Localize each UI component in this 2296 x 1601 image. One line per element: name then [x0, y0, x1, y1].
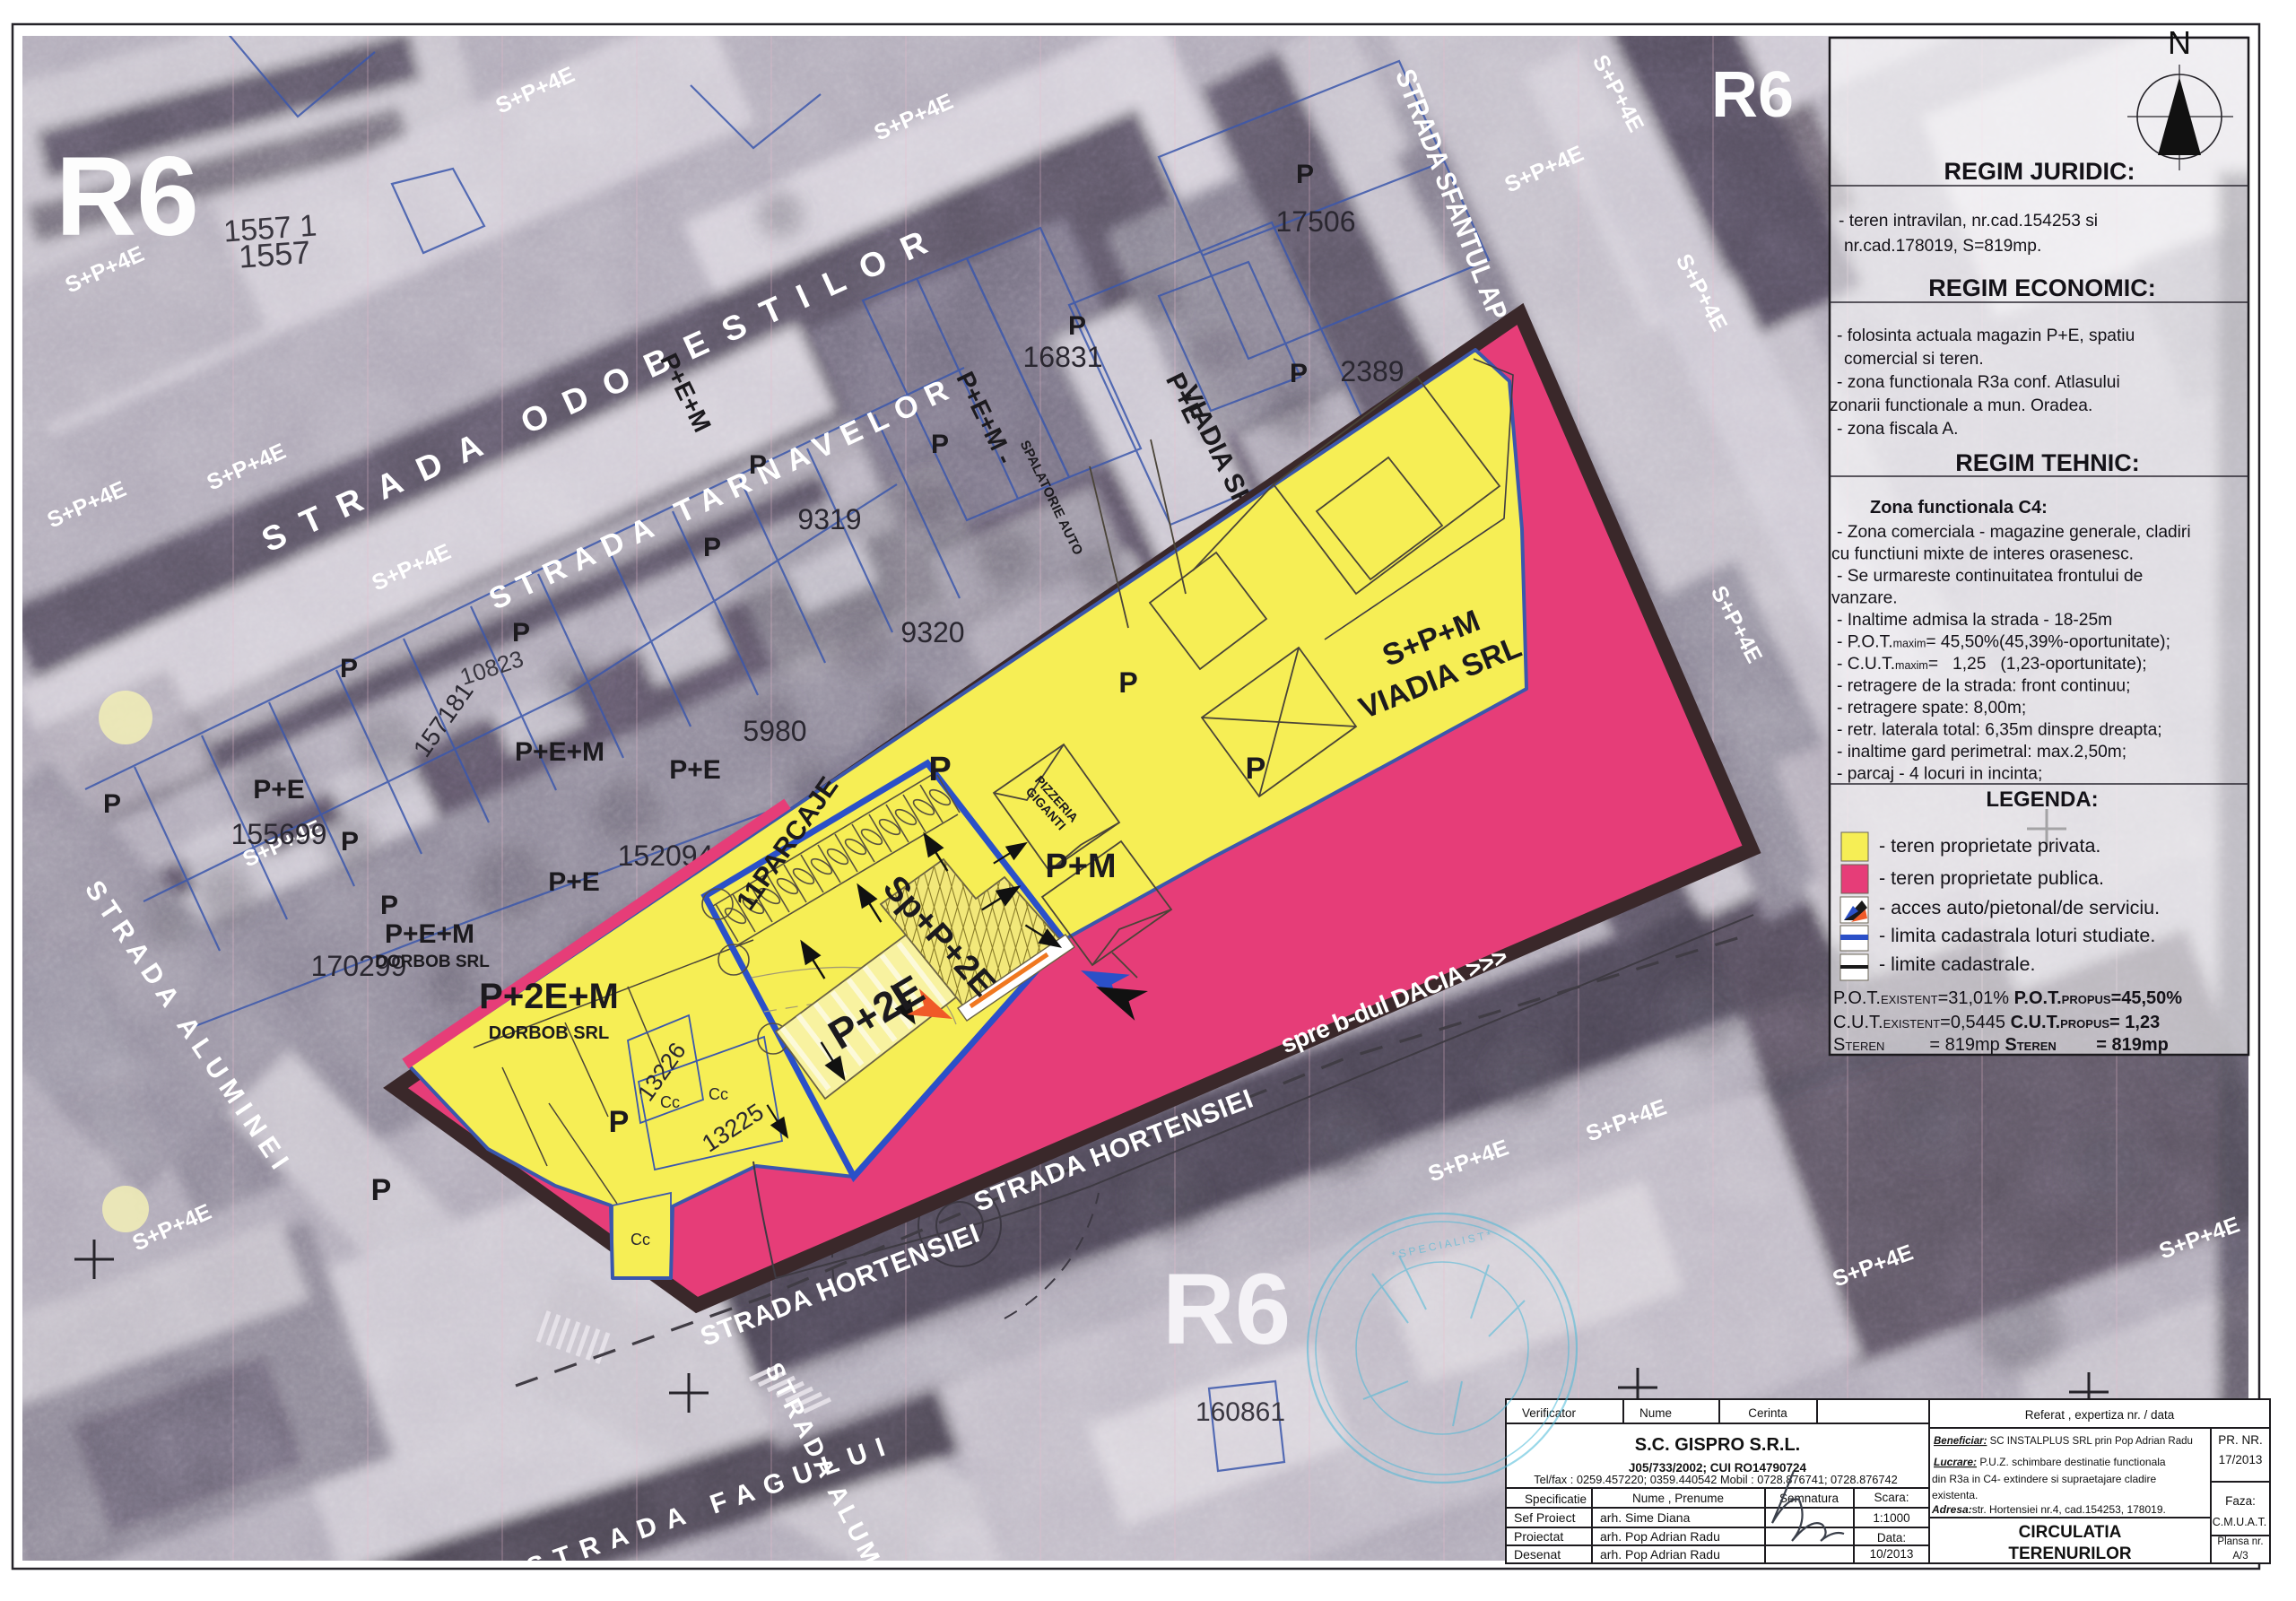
svg-text:Proiectat: Proiectat [1514, 1529, 1563, 1544]
svg-text:- Zona comerciala - magazine g: - Zona comerciala - magazine generale, c… [1837, 523, 2191, 542]
svg-text:P+E: P+E [669, 755, 721, 785]
svg-text:P+M: P+M [1045, 848, 1116, 885]
svg-text:C.U.T.EXISTENT=0,5445 C.U.T.P: C.U.T.EXISTENT=0,5445 C.U.T.PROPUS= 1,23 [1833, 1013, 2160, 1032]
svg-text:zonarii functionale a mun. Ora: zonarii functionale a mun. Oradea. [1830, 396, 2092, 415]
svg-text:Referat , expertiza nr. / data: Referat , expertiza nr. / data [2025, 1408, 2175, 1422]
svg-text:1557: 1557 [238, 233, 312, 274]
svg-text:- Se urmareste continuitatea f: - Se urmareste continuitatea frontului d… [1837, 567, 2143, 586]
svg-text:- teren intravilan, nr.cad.154: - teren intravilan, nr.cad.154253 si [1839, 212, 2098, 231]
svg-text:P: P [931, 430, 949, 459]
svg-text:Data:: Data: [1877, 1531, 1906, 1544]
svg-text:nr.cad.178019, S=819mp.: nr.cad.178019, S=819mp. [1844, 237, 2041, 256]
svg-text:REGIM ECONOMIC:: REGIM ECONOMIC: [1928, 274, 2156, 301]
svg-text:Sef Proiect: Sef Proiect [1514, 1510, 1576, 1525]
svg-text:Cc: Cc [660, 1093, 680, 1111]
svg-text:- retragere de la strada: fron: - retragere de la strada: front continuu… [1837, 677, 2130, 696]
svg-text:- C.U.T.maxim= 1,25 (1,23-: - C.U.T.maxim= 1,25 (1,23-oportunitate); [1837, 655, 2147, 674]
svg-text:Verificator: Verificator [1522, 1406, 1577, 1420]
svg-text:P: P [749, 450, 767, 480]
svg-text:- Inaltime admisa la strada -: - Inaltime admisa la strada - 18-25m [1837, 611, 2112, 630]
svg-text:- teren proprietate privata.: - teren proprietate privata. [1879, 835, 2100, 857]
svg-text:P: P [341, 827, 359, 857]
svg-text:- teren proprietate publica.: - teren proprietate publica. [1879, 867, 2104, 889]
svg-text:REGIM JURIDIC:: REGIM JURIDIC: [1944, 158, 2135, 185]
svg-text:P: P [380, 891, 398, 920]
svg-text:arh. Sime Diana: arh. Sime Diana [1600, 1510, 1691, 1525]
svg-text:Adresa:str. Hortensiei nr.4, c: Adresa:str. Hortensiei nr.4, cad.154253,… [1931, 1503, 2166, 1516]
svg-text:R6: R6 [56, 135, 199, 259]
svg-text:A/3: A/3 [2232, 1551, 2248, 1562]
svg-text:- limita cadastrala loturi stu: - limita cadastrala loturi studiate. [1879, 925, 2155, 946]
svg-text:17506: 17506 [1276, 205, 1356, 238]
svg-text:Tel/fax : 0259.457220; 0359.44: Tel/fax : 0259.457220; 0359.440542 Mobil… [1534, 1473, 1898, 1486]
svg-text:Scara:: Scara: [1874, 1491, 1909, 1504]
svg-text:- zona fiscala A.: - zona fiscala A. [1837, 420, 1958, 439]
svg-text:DORBOB SRL: DORBOB SRL [375, 953, 490, 971]
svg-text:10/2013: 10/2013 [1870, 1547, 1914, 1561]
svg-text:Desenat: Desenat [1514, 1547, 1561, 1562]
svg-text:- retragere spate: 8,00m;: - retragere spate: 8,00m; [1837, 699, 2026, 718]
svg-text:S.C. GISPRO S.R.L.: S.C. GISPRO S.R.L. [1635, 1435, 1800, 1455]
svg-text:Nume: Nume [1639, 1406, 1672, 1420]
svg-text:P: P [512, 618, 530, 648]
svg-text:17/2013: 17/2013 [2219, 1453, 2263, 1466]
svg-text:P: P [371, 1173, 392, 1207]
svg-text:2389: 2389 [1340, 355, 1404, 387]
svg-text:Specificatie: Specificatie [1525, 1492, 1587, 1506]
svg-text:16831: 16831 [1023, 341, 1103, 373]
svg-text:Plansa nr.: Plansa nr. [2217, 1536, 2263, 1547]
svg-text:Zona functionala C4:: Zona functionala C4: [1870, 498, 2048, 518]
svg-text:1:1000: 1:1000 [1873, 1511, 1909, 1525]
svg-text:P: P [1296, 160, 1314, 189]
svg-text:din R3a in C4- extindere si su: din R3a in C4- extindere si supraetajare… [1932, 1473, 2156, 1485]
svg-text:R6: R6 [1711, 59, 1794, 131]
svg-text:Cc: Cc [709, 1085, 728, 1103]
svg-text:- limite cadastrale.: - limite cadastrale. [1879, 953, 2035, 975]
svg-text:160861: 160861 [1196, 1397, 1285, 1427]
svg-text:P: P [1068, 311, 1086, 341]
svg-text:P+2E+M: P+2E+M [479, 977, 619, 1016]
svg-text:5980: 5980 [743, 715, 806, 747]
svg-text:P+E: P+E [253, 775, 305, 805]
svg-text:- acces auto/pietonal/de servi: - acces auto/pietonal/de serviciu. [1879, 897, 2160, 918]
svg-text:PR. NR.: PR. NR. [2218, 1433, 2263, 1447]
svg-text:- zona functionala R3a conf. A: - zona functionala R3a conf. Atlasului [1837, 373, 2120, 392]
svg-text:Faza:: Faza: [2225, 1494, 2256, 1508]
svg-text:REGIM TEHNIC:: REGIM TEHNIC: [1955, 449, 2140, 476]
svg-text:P: P [1290, 359, 1308, 388]
svg-text:Beneficiar: SC INSTALPLUS SRL: Beneficiar: SC INSTALPLUS SRL prin Pop A… [1934, 1436, 2193, 1447]
svg-text:- retr. laterala total: 6,35m: - retr. laterala total: 6,35m dinspre dr… [1837, 721, 2162, 740]
svg-text:arh. Pop Adrian Radu: arh. Pop Adrian Radu [1600, 1529, 1720, 1544]
svg-text:- P.O.T.maxim= 45,50%(45,39%-o: - P.O.T.maxim= 45,50%(45,39%-oportunitat… [1837, 633, 2170, 652]
svg-text:P: P [928, 751, 951, 788]
svg-text:cu functiuni mixte de interes: cu functiuni mixte de interes orasenesc. [1831, 545, 2134, 564]
svg-text:LEGENDA:: LEGENDA: [1986, 787, 2098, 812]
svg-text:P+E+M: P+E+M [515, 737, 604, 767]
svg-text:vanzare.: vanzare. [1831, 589, 1898, 608]
svg-text:CIRCULATIA: CIRCULATIA [2019, 1523, 2122, 1542]
svg-text:- folosinta actuala magazin P+: - folosinta actuala magazin P+E, spatiu [1837, 326, 2135, 345]
svg-text:DORBOB SRL: DORBOB SRL [489, 1023, 609, 1043]
svg-text:Lucrare: P.U.Z. schimbare dest: Lucrare: P.U.Z. schimbare destinatie fun… [1934, 1456, 2166, 1468]
svg-text:C.M.U.A.T.: C.M.U.A.T. [2213, 1516, 2266, 1528]
svg-text:arh. Pop Adrian Radu: arh. Pop Adrian Radu [1600, 1547, 1720, 1562]
svg-text:P+E+M: P+E+M [385, 919, 474, 949]
svg-text:Nume , Prenume: Nume , Prenume [1632, 1492, 1724, 1505]
svg-text:existenta.: existenta. [1932, 1489, 1978, 1501]
svg-text:P+E: P+E [548, 867, 600, 897]
svg-text:P: P [1118, 666, 1137, 699]
svg-text:9320: 9320 [900, 616, 964, 648]
svg-text:9319: 9319 [797, 503, 861, 535]
svg-text:R6: R6 [1162, 1253, 1291, 1365]
svg-text:155699: 155699 [231, 818, 327, 850]
svg-text:Cerinta: Cerinta [1748, 1406, 1787, 1420]
svg-text:comercial si teren.: comercial si teren. [1844, 350, 1984, 369]
svg-text:- inaltime gard perimetral: ma: - inaltime gard perimetral: max.2,50m; [1837, 743, 2126, 761]
svg-text:P: P [340, 654, 358, 683]
svg-text:P: P [609, 1105, 630, 1139]
svg-text:P: P [703, 533, 721, 562]
svg-text:- parcaj - 4 locuri in incinta: - parcaj - 4 locuri in incinta; [1837, 765, 2042, 784]
svg-text:P: P [1246, 752, 1266, 786]
svg-text:Cc: Cc [631, 1231, 650, 1249]
svg-text:TERENURILOR: TERENURILOR [2008, 1544, 2132, 1563]
svg-text:N: N [2168, 24, 2191, 61]
svg-text:P: P [103, 789, 121, 819]
